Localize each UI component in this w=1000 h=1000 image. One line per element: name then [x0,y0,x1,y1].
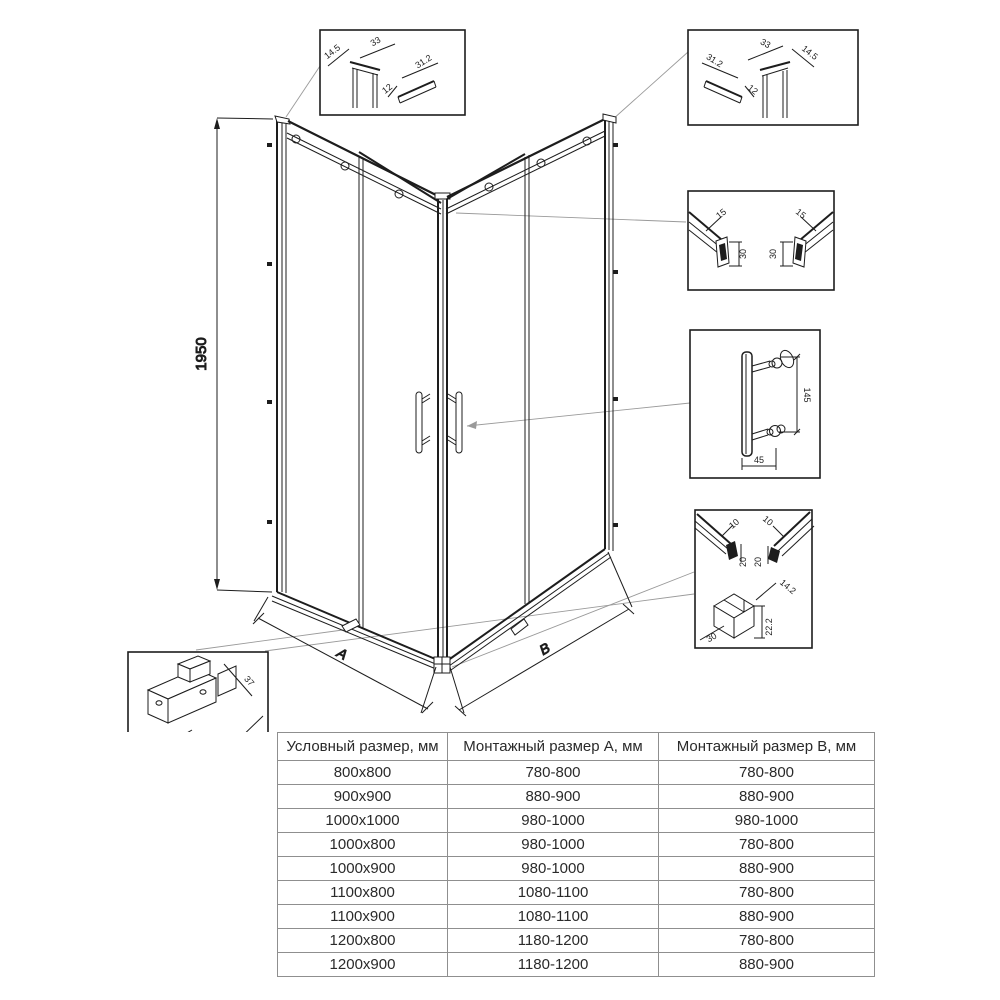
right-door-handle [448,392,462,453]
callout-roller: 55 37 59 [128,652,268,732]
mounting-size-a: 980-1000 [448,857,659,881]
mounting-size-a: 880-900 [448,785,659,809]
bottom-rails [272,549,611,673]
table-row: 900x900 880-900 880-900 [278,785,875,809]
mounting-size-a: 1080-1100 [448,905,659,929]
left-wall-profile [267,116,290,593]
table-row: 800x800 780-800 780-800 [278,761,875,785]
mounting-size-b: 780-800 [659,881,875,905]
table-row: 1200x900 1180-1200 880-900 [278,953,875,977]
height-dimension-label: 1950 [193,337,210,370]
table-row: 1000x1000 980-1000 980-1000 [278,809,875,833]
bottom-rail-left-height-label: 20 [738,557,748,567]
mounting-size-b: 980-1000 [659,809,875,833]
dimension-A: A [253,597,436,713]
table-row: 1000x800 980-1000 780-800 [278,833,875,857]
table-row: 1000x900 980-1000 880-900 [278,857,875,881]
handle-depth-label: 45 [754,455,764,465]
col-header-nominal-size: Условный размер, мм [278,733,448,761]
callout-top-left: 14.5 33 12 31.2 [320,30,465,115]
dimension-B: B [450,552,634,716]
left-mullion [359,156,363,628]
rail-left-height-label: 30 [738,249,748,259]
nominal-size: 1200x800 [278,929,448,953]
mounting-size-a: 780-800 [448,761,659,785]
col-header-mounting-size-a: Монтажный размер А, мм [448,733,659,761]
mounting-size-b: 880-900 [659,953,875,977]
bottom-rail-right-height-label: 20 [753,557,763,567]
nominal-size: 1000x1000 [278,809,448,833]
width-b-label: B [536,639,552,658]
shower-enclosure-spec-sheet: 1950 A B [0,0,1000,1000]
leader-arrow [467,421,477,429]
right-wall-profile [603,114,618,551]
callout-handle: 145 45 [690,330,820,478]
callout-bottom-right: 10 10 20 20 14.2 22.2 30 [695,510,814,648]
dimension-1950: 1950 [193,118,273,592]
mounting-size-a: 980-1000 [448,809,659,833]
nominal-size: 1000x800 [278,833,448,857]
callout-rails: 15 30 15 30 [688,191,834,290]
rail-right-height-label: 30 [768,249,778,259]
left-door-handle [416,392,430,453]
corner-height-dim-label: 22.2 [764,618,774,636]
nominal-size: 800x800 [278,761,448,785]
size-table: Условный размер, мм Монтажный размер А, … [277,732,875,977]
mounting-size-a: 1180-1200 [448,953,659,977]
col-header-mounting-size-b: Монтажный размер В, мм [659,733,875,761]
mounting-size-b: 780-800 [659,761,875,785]
nominal-size: 900x900 [278,785,448,809]
mounting-size-a: 980-1000 [448,833,659,857]
mounting-size-a: 1080-1100 [448,881,659,905]
mounting-size-a: 1180-1200 [448,929,659,953]
callout-top-right: 31.2 12 33 14.5 [688,30,858,125]
table-row: 1100x900 1080-1100 880-900 [278,905,875,929]
mounting-size-b: 780-800 [659,929,875,953]
table-row: 1200x800 1180-1200 780-800 [278,929,875,953]
nominal-size: 1100x900 [278,905,448,929]
mounting-size-b: 780-800 [659,833,875,857]
enclosure-isometric-view [267,114,618,673]
left-top-rail [287,121,441,214]
technical-drawing: 1950 A B [0,0,1000,732]
size-table-header-row: Условный размер, мм Монтажный размер А, … [278,733,875,761]
mounting-size-b: 880-900 [659,857,875,881]
nominal-size: 1200x900 [278,953,448,977]
nominal-size: 1100x800 [278,881,448,905]
mounting-size-b: 880-900 [659,785,875,809]
handle-length-label: 145 [802,387,812,402]
nominal-size: 1000x900 [278,857,448,881]
table-row: 1100x800 1080-1100 780-800 [278,881,875,905]
right-mullion [525,155,529,604]
corner-post [435,193,450,661]
mounting-size-b: 880-900 [659,905,875,929]
